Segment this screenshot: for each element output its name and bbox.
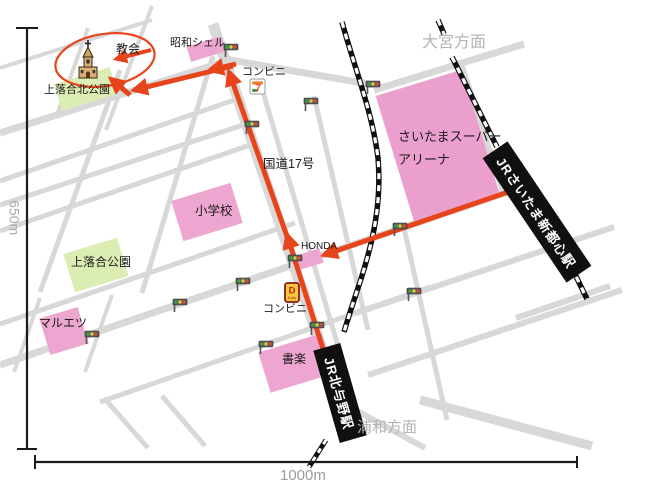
vertical-scale-label: 650m bbox=[6, 198, 21, 238]
route17-label: 国道17号 bbox=[263, 158, 314, 172]
route-map: 7 D Daily bbox=[0, 0, 650, 502]
showa-shell-label: 昭和シェル bbox=[170, 37, 225, 49]
seven-glyph: 7 bbox=[255, 83, 261, 95]
park-label: 上落合公園 bbox=[71, 256, 131, 269]
route-arrow-westward bbox=[134, 66, 233, 90]
honda-label: HONDA bbox=[301, 241, 337, 252]
church-label: 教会 bbox=[116, 43, 140, 56]
direction-urawa-label: 浦和方面 bbox=[357, 420, 417, 437]
traffic-light-icon bbox=[224, 44, 238, 57]
convenience-store-label-bottom: コンビニ bbox=[263, 303, 307, 315]
direction-omiya-label: 大宮方面 bbox=[422, 34, 486, 52]
daily-yamazaki-icon: D Daily bbox=[285, 283, 299, 302]
seven-eleven-icon: 7 bbox=[250, 79, 265, 95]
bookstore-label: 書楽 bbox=[282, 353, 306, 366]
arena-label-line1: さいたまスーパー bbox=[398, 130, 501, 144]
horizontal-scale-label: 1000m bbox=[280, 468, 326, 485]
daily-word-glyph: Daily bbox=[288, 296, 297, 300]
arena-label-line2: アリーナ bbox=[398, 153, 450, 167]
school-label: 小学校 bbox=[195, 205, 233, 219]
park-north-label: 上落合北公園 bbox=[44, 84, 110, 96]
convenience-store-label-top: コンビニ bbox=[242, 66, 286, 78]
maruetsu-label: マルエツ bbox=[39, 317, 87, 330]
